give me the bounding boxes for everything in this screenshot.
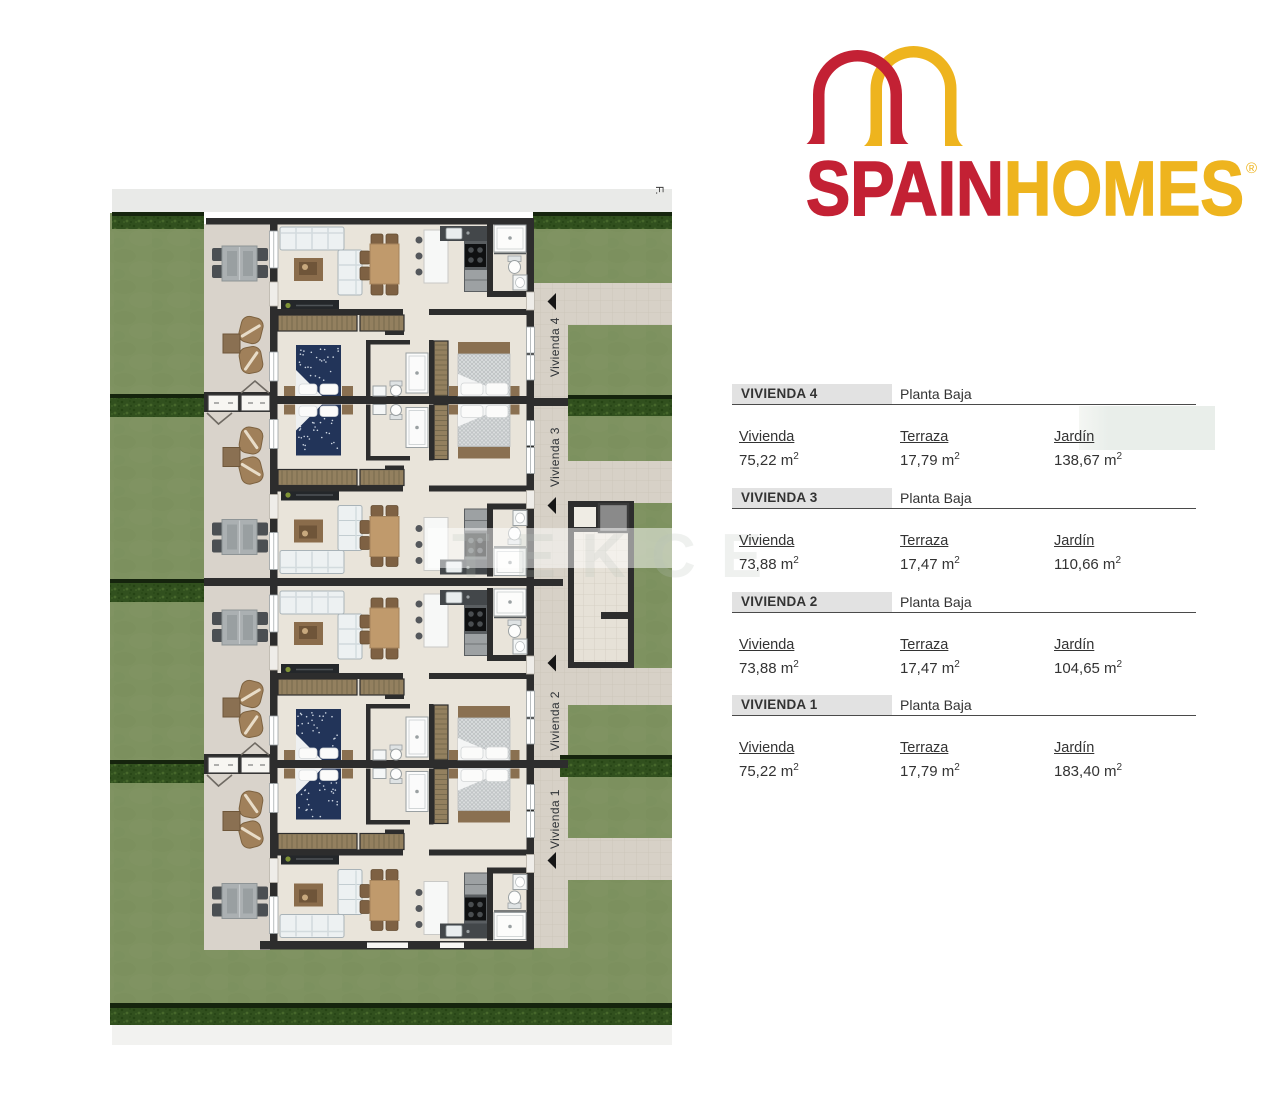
svg-text:Vivienda 4: Vivienda 4 <box>548 317 562 377</box>
svg-text:F.: F. <box>653 186 665 195</box>
svg-text:®: ® <box>1246 160 1257 177</box>
svg-text:TEKCE: TEKCE <box>452 522 787 591</box>
svg-text:Vivienda 1: Vivienda 1 <box>548 789 562 849</box>
svg-text:Vivienda 3: Vivienda 3 <box>548 427 562 487</box>
svg-text:HOMES: HOMES <box>1004 146 1244 230</box>
svg-text:SPAIN: SPAIN <box>806 146 1004 230</box>
svg-text:Vivienda 2: Vivienda 2 <box>548 691 562 751</box>
